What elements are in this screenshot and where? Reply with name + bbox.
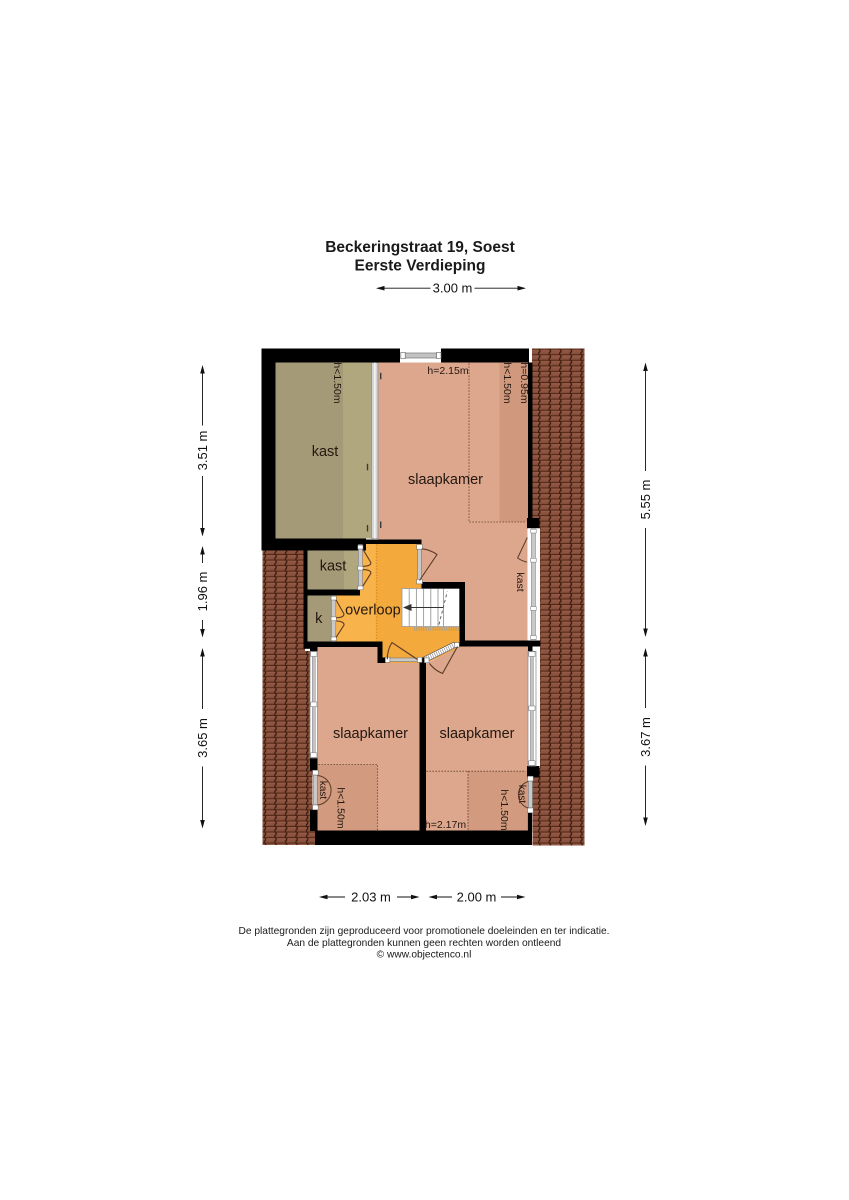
svg-text:kast: kast <box>317 781 328 800</box>
svg-text:3.65 m: 3.65 m <box>195 718 210 758</box>
svg-text:1.96 m: 1.96 m <box>195 572 210 612</box>
svg-text:2.00 m: 2.00 m <box>457 890 497 905</box>
svg-text:3.51 m: 3.51 m <box>195 431 210 471</box>
svg-text:h<1.50m: h<1.50m <box>335 787 347 828</box>
svg-text:h=0.95m: h=0.95m <box>518 362 530 403</box>
svg-text:2.03 m: 2.03 m <box>351 890 391 905</box>
svg-text:De plattegronden zijn geproduc: De plattegronden zijn geproduceerd voor … <box>239 926 610 937</box>
svg-text:overloop: overloop <box>345 603 401 619</box>
svg-text:3.00 m: 3.00 m <box>433 281 473 296</box>
svg-text:h<1.50m: h<1.50m <box>498 789 510 830</box>
svg-text:Beckeringstraat 19, Soest: Beckeringstraat 19, Soest <box>325 239 515 256</box>
svg-text:h=2.17m: h=2.17m <box>425 819 466 831</box>
svg-text:kast: kast <box>320 559 347 575</box>
svg-text:k: k <box>315 611 323 627</box>
svg-text:h=2.15m: h=2.15m <box>427 365 468 377</box>
svg-text:kast: kast <box>514 572 526 591</box>
svg-text:slaapkamer: slaapkamer <box>408 472 483 488</box>
svg-text:kast: kast <box>312 444 339 460</box>
svg-text:kast: kast <box>516 785 527 804</box>
svg-text:h<1.50m: h<1.50m <box>331 362 343 403</box>
svg-text:Aan de plattegronden kunnen ge: Aan de plattegronden kunnen geen rechten… <box>287 938 561 949</box>
svg-text:5.55 m: 5.55 m <box>638 480 653 520</box>
svg-text:© www.objectenco.nl: © www.objectenco.nl <box>377 950 472 961</box>
svg-text:slaapkamer: slaapkamer <box>333 726 408 742</box>
svg-text:3.67 m: 3.67 m <box>638 717 653 757</box>
svg-text:slaapkamer: slaapkamer <box>440 726 515 742</box>
svg-text:h<1.50m: h<1.50m <box>501 362 513 403</box>
svg-text:Eerste Verdieping: Eerste Verdieping <box>355 258 486 275</box>
